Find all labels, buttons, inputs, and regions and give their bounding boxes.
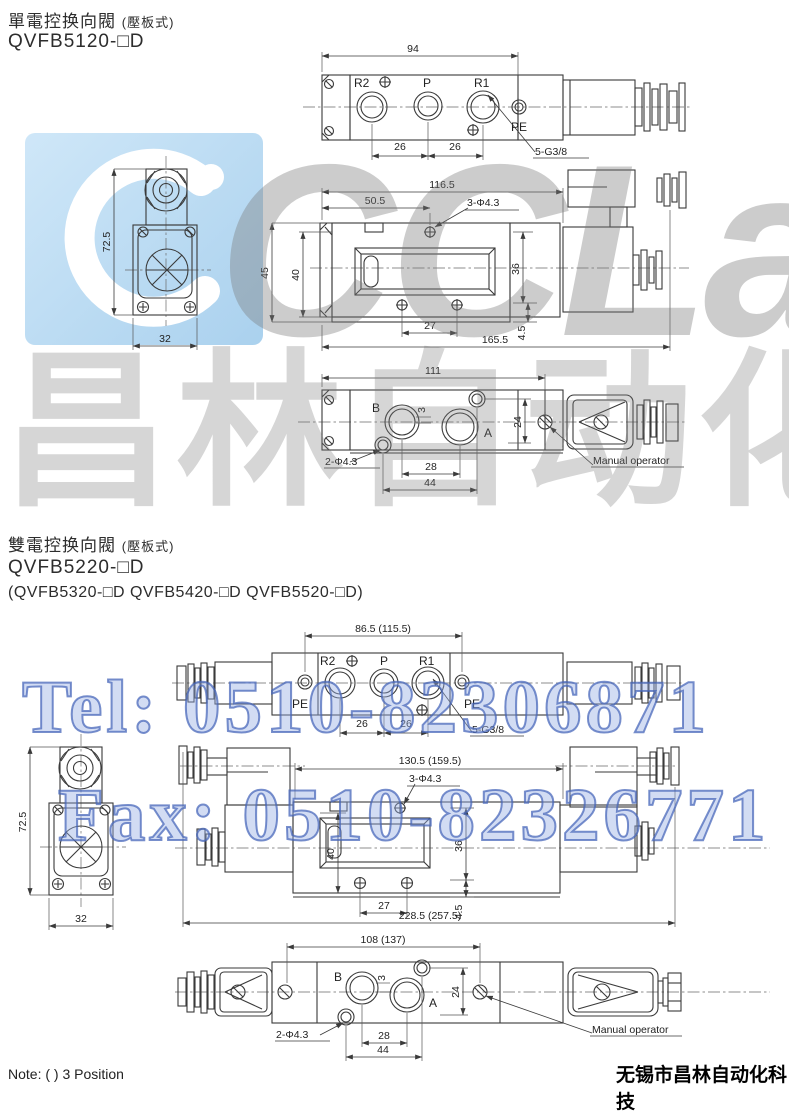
dim-32: 32 <box>159 333 171 345</box>
section1-model: QVFB5120-□D <box>8 31 145 53</box>
dim-228-5: 228.5 (257.5) <box>399 910 461 922</box>
dim-4-5: 4.5 <box>516 326 528 341</box>
port-label-p: P <box>423 76 431 90</box>
dim-26a: 26 <box>356 718 368 730</box>
thread-callout: 5-G3/8 <box>472 724 504 736</box>
dim-3: 3 <box>416 407 428 413</box>
dim-72-5: 72.5 <box>17 812 29 833</box>
s2-side-dims: 130.5 (159.5) 3-Φ4.3 40 36 4.5 27 228.5 … <box>183 752 675 927</box>
port-label-a: A <box>429 996 437 1010</box>
dim-36: 36 <box>510 263 522 275</box>
s2-bottom-view-drawing: B A 108 (137) 3 24 Manual operator 2-Φ4.… <box>170 935 785 1070</box>
section1-title-text: 單電控换向閥 <box>8 12 116 31</box>
dim-44: 44 <box>424 477 436 489</box>
section2-model: QVFB5220-□D <box>8 557 145 579</box>
s2-top-view-drawing: R2 P R1 PE PE 86.5 (115.5) 26 26 5-G3/8 <box>170 622 785 747</box>
s2-side-view-drawing: 130.5 (159.5) 3-Φ4.3 40 36 4.5 27 228.5 … <box>170 742 785 937</box>
section2-title-text: 雙電控换向閥 <box>8 536 116 555</box>
dim-72-5: 72.5 <box>101 232 113 253</box>
port-label-r2: R2 <box>320 654 336 668</box>
manual-operator-callout: Manual operator <box>592 1024 669 1036</box>
dim-32: 32 <box>75 913 87 925</box>
port-label-r2: R2 <box>354 76 370 90</box>
port-label-pe-right: PE <box>464 697 480 711</box>
dim-24: 24 <box>450 986 462 998</box>
dim-50-5: 50.5 <box>365 195 386 207</box>
port-label-b: B <box>372 401 380 415</box>
dim-45: 45 <box>259 267 271 279</box>
port-label-r1: R1 <box>474 76 490 90</box>
catalog-page: { "colors": {"accent_blue":"#5b82cf","lo… <box>0 0 789 1096</box>
dim-26b: 26 <box>449 141 461 153</box>
footer-note: Note: ( ) 3 Position <box>8 1066 124 1082</box>
dim-108: 108 (137) <box>361 934 406 946</box>
dim-27: 27 <box>424 320 436 332</box>
s2-end-dims: 72.5 32 <box>17 747 113 930</box>
s1-side-valve-body <box>320 170 686 322</box>
holes-callout-2: 2-Φ4.3 <box>325 456 357 468</box>
thread-callout: 5-G3/8 <box>535 146 567 158</box>
s1-side-view-drawing: 116.5 50.5 3-Φ4.3 45 40 36 4.5 27 165.5 <box>255 165 695 362</box>
dim-28: 28 <box>378 1030 390 1042</box>
dim-27: 27 <box>378 900 390 912</box>
dim-26b: 26 <box>400 718 412 730</box>
s1-side-dims: 116.5 50.5 3-Φ4.3 45 40 36 4.5 27 165.5 <box>259 179 670 351</box>
port-label-b: B <box>334 970 342 984</box>
dim-28: 28 <box>425 461 437 473</box>
dim-40: 40 <box>325 848 337 860</box>
footer-company: 无锡市昌林自动化科技 <box>616 1060 789 1114</box>
s1-top-valve-body <box>322 75 685 140</box>
s1-bottom-view-drawing: B A 111 3 24 Manual operator 2-Φ4.3 28 4… <box>288 360 690 510</box>
dim-40: 40 <box>290 269 302 281</box>
dim-130-5: 130.5 (159.5) <box>399 755 461 767</box>
section1-subtitle: (壓板式) <box>122 15 175 30</box>
holes-callout: 2-Φ4.3 <box>276 1029 308 1041</box>
dim-94: 94 <box>407 43 419 55</box>
port-label-r1: R1 <box>419 654 435 668</box>
dim-44: 44 <box>377 1044 389 1056</box>
port-label-pe: PE <box>511 120 527 134</box>
s1-end-body <box>133 169 197 315</box>
s2-bottom-dims: 108 (137) 3 24 Manual operator 2-Φ4.3 28… <box>275 934 682 1061</box>
s1-bottom-dims: 111 3 24 Manual operator 2-Φ4.3 28 44 <box>322 365 684 494</box>
holes-callout: 3-Φ4.3 <box>467 197 499 209</box>
dim-3: 3 <box>376 975 388 981</box>
dim-26a: 26 <box>394 141 406 153</box>
dim-165-5: 165.5 <box>482 334 508 346</box>
holes-callout: 3-Φ4.3 <box>409 773 441 785</box>
section2-subtitle: (壓板式) <box>122 539 175 554</box>
dim-36: 36 <box>453 840 465 852</box>
section2-title: 雙電控换向閥 (壓板式) <box>8 531 174 556</box>
port-label-p: P <box>380 654 388 668</box>
port-label-pe-left: PE <box>292 697 308 711</box>
s2-end-view-drawing: 72.5 32 <box>18 712 173 937</box>
dim-116-5: 116.5 <box>429 179 455 191</box>
dim-86-5: 86.5 (115.5) <box>355 623 411 635</box>
dim-111: 111 <box>425 365 441 377</box>
section1-title: 單電控换向閥 (壓板式) <box>8 7 174 32</box>
s1-end-view-drawing: 72.5 32 <box>83 148 238 366</box>
s1-top-ports <box>357 76 526 136</box>
dim-24: 24 <box>512 416 524 428</box>
port-label-a: A <box>484 426 492 440</box>
manual-operator-callout: Manual operator <box>593 455 670 467</box>
s1-top-view-drawing: R2 P R1 PE 94 26 26 5-G3/8 <box>295 38 695 173</box>
section2-alt-models: (QVFB5320-□D QVFB5420-□D QVFB5520-□D) <box>8 584 363 602</box>
s2-top-dims: 86.5 (115.5) 26 26 5-G3/8 <box>305 623 524 737</box>
